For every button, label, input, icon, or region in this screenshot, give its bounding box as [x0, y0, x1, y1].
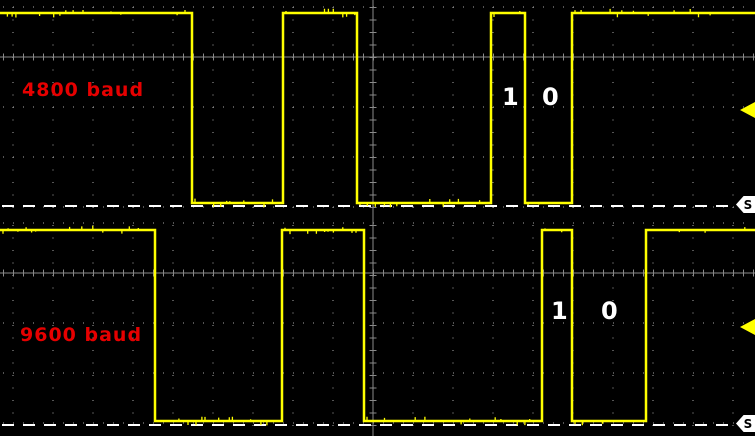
bit-value-annotation: 1 — [551, 299, 568, 323]
waveform-panel-4800-baud: 4800 baud 1 0 S — [0, 0, 755, 218]
trigger-source-letter: S — [744, 418, 753, 430]
baud-rate-label: 4800 baud — [22, 81, 144, 100]
bit-value-annotation: 1 — [502, 85, 519, 109]
channel-position-arrow-icon — [740, 319, 755, 335]
bit-value-annotation: 0 — [542, 85, 559, 109]
trigger-source-letter: S — [744, 199, 753, 211]
bit-value-annotation: 0 — [601, 299, 618, 323]
waveform-panel-9600-baud: 9600 baud 1 0 S — [0, 218, 755, 436]
baud-rate-label: 9600 baud — [20, 326, 142, 345]
oscilloscope-screen: 4800 baud 1 0 S 9600 baud 1 0 S — [0, 0, 755, 436]
waveform-trace-4800 — [0, 0, 755, 218]
channel-position-arrow-icon — [740, 102, 755, 118]
